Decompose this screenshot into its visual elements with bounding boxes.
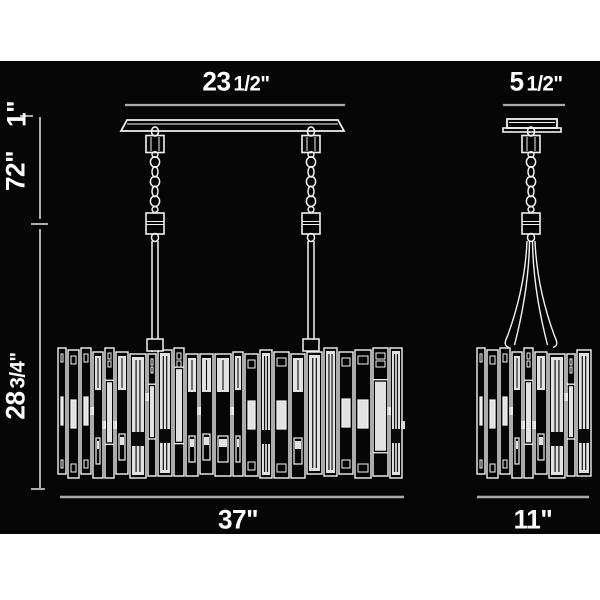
dim-label-front-shade-width: 37" — [218, 507, 258, 534]
dim-value-big: 11" — [514, 505, 553, 535]
dim-value-big: 28 — [1, 391, 31, 419]
dim-label-body-height: 283/4" — [3, 352, 30, 419]
dim-label-side-shade-width: 11" — [514, 507, 553, 534]
dim-value-big: 72" — [1, 151, 31, 191]
dim-value-big: 5 — [509, 67, 523, 97]
dim-label-canopy-height: 1" — [4, 101, 31, 127]
dim-label-max-height: 72" — [3, 151, 30, 191]
dim-value-fraction: 1/2" — [526, 73, 562, 96]
dim-value-big: 1" — [2, 101, 32, 127]
dim-value-big: 23 — [202, 67, 230, 97]
dim-label-front-canopy-width: 231/2" — [202, 69, 269, 96]
dim-label-side-canopy-width: 51/2" — [509, 69, 562, 96]
dim-value-big: 37" — [218, 505, 258, 535]
dim-value-fraction: 1/2" — [234, 73, 270, 96]
dim-value-fraction: 3/4" — [7, 352, 30, 388]
diagram-canvas: 231/2" 51/2" 1" 72" 283/4" 37" 11" — [0, 0, 600, 600]
